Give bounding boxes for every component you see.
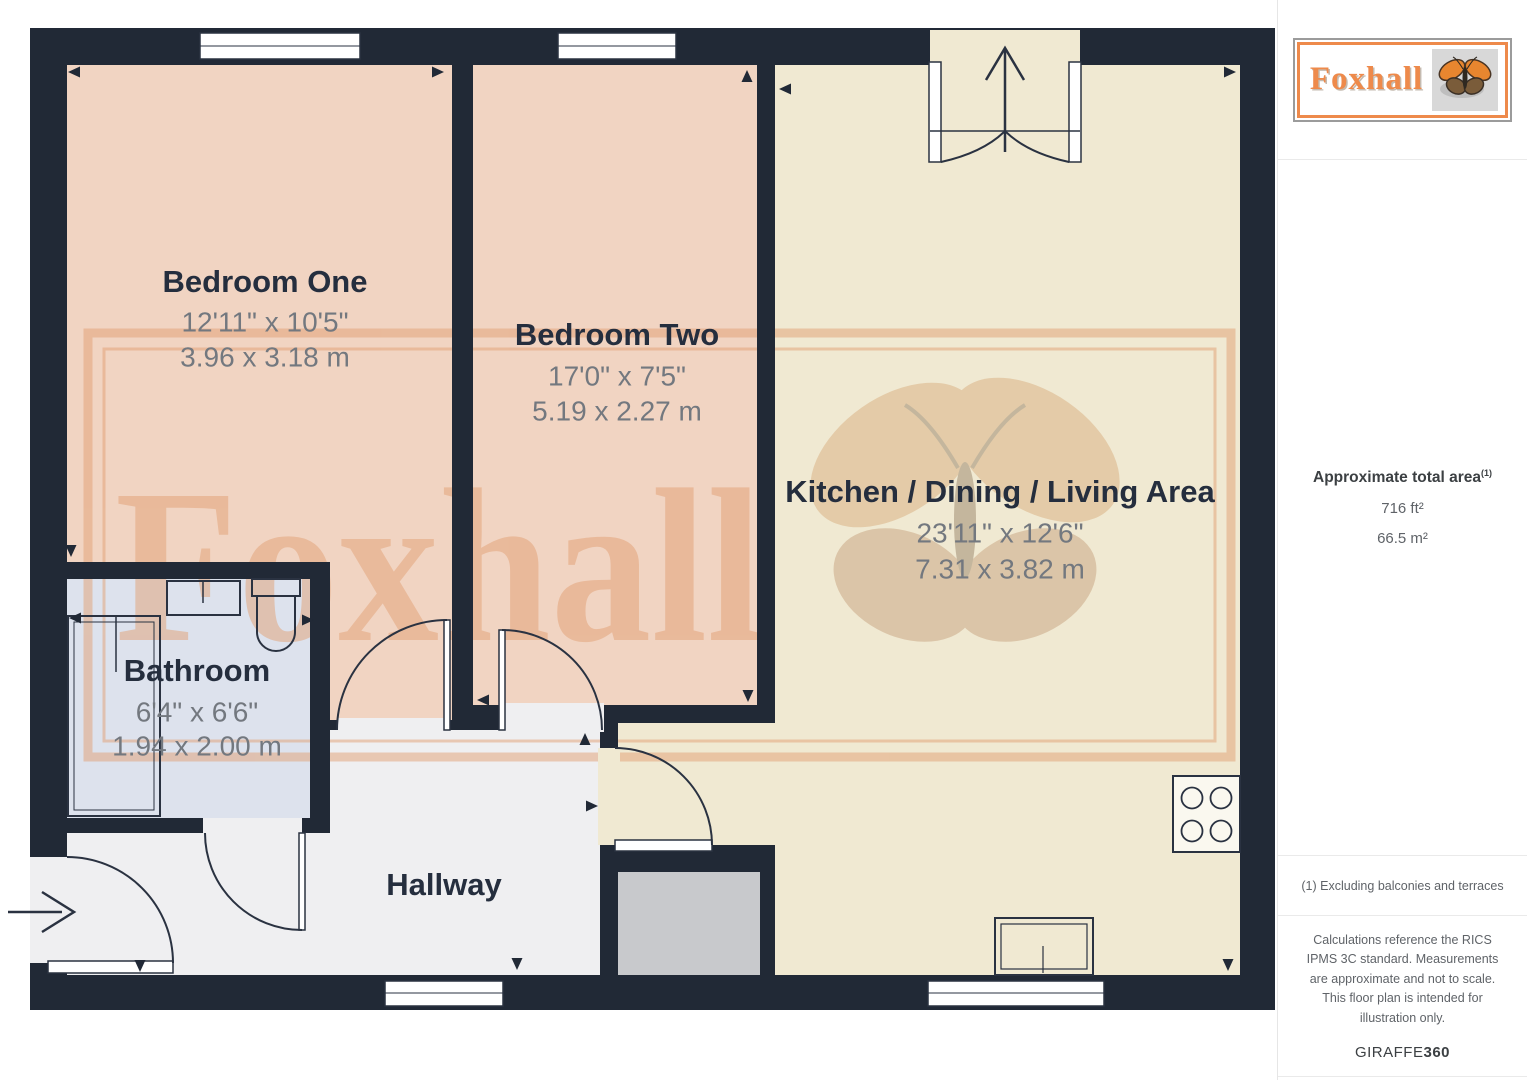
svg-text:Bedroom One: Bedroom One [163,264,368,299]
floor-plan: Foxhall [0,0,1277,1080]
hob-icon [1173,776,1240,852]
room-label-bathroom: Bathroom 6'4" x 6'6" 1.94 x 2.00 m [112,653,282,761]
total-area-section: Approximate total area(1) 716 ft² 66.5 m… [1278,160,1527,856]
room-label-hallway: Hallway [386,867,502,902]
svg-text:Hallway: Hallway [386,867,502,902]
svg-text:Bedroom Two: Bedroom Two [515,317,719,352]
svg-text:5.19 x 2.27 m: 5.19 x 2.27 m [532,395,702,426]
svg-text:1.94 x 2.00 m: 1.94 x 2.00 m [112,730,282,761]
room-label-bedroom-one: Bedroom One 12'11" x 10'5" 3.96 x 3.18 m [163,264,368,372]
window-bedroom-two [558,33,676,59]
window-kitchen [928,981,1104,1006]
giraffe360-brand: GIRAFFE360 [1355,1044,1450,1061]
disclaimer-text: Calculations reference the RICS IPMS 3C … [1304,931,1502,1028]
agency-logo-text: Foxhall [1307,61,1426,98]
svg-text:6'4" x 6'6": 6'4" x 6'6" [136,696,258,727]
window-bedroom-one [200,33,360,59]
logo-section: Foxhall [1278,0,1527,160]
window-hallway [385,981,503,1006]
svg-text:Kitchen / Dining / Living Area: Kitchen / Dining / Living Area [785,474,1215,509]
footnote: (1) Excluding balconies and terraces [1278,856,1527,916]
butterfly-icon [1432,49,1498,111]
area-footnote-marker: (1) [1481,468,1492,478]
disclaimer-section: Calculations reference the RICS IPMS 3C … [1278,916,1527,1077]
svg-text:12'11" x 10'5": 12'11" x 10'5" [181,306,348,337]
total-area-metric: 66.5 m² [1377,530,1428,547]
svg-text:23'11" x 12'6": 23'11" x 12'6" [916,517,1083,548]
svg-text:17'0" x 7'5": 17'0" x 7'5" [548,360,686,391]
svg-text:3.96 x 3.18 m: 3.96 x 3.18 m [180,341,350,372]
agency-logo: Foxhall [1293,38,1512,122]
total-area-imperial: 716 ft² [1381,500,1424,517]
svg-text:Bathroom: Bathroom [124,653,270,688]
total-area-heading: Approximate total area(1) [1313,468,1492,487]
svg-text:7.31 x 3.82 m: 7.31 x 3.82 m [915,553,1085,584]
info-sidebar: Foxhall Approximate total area(1) [1277,0,1527,1080]
